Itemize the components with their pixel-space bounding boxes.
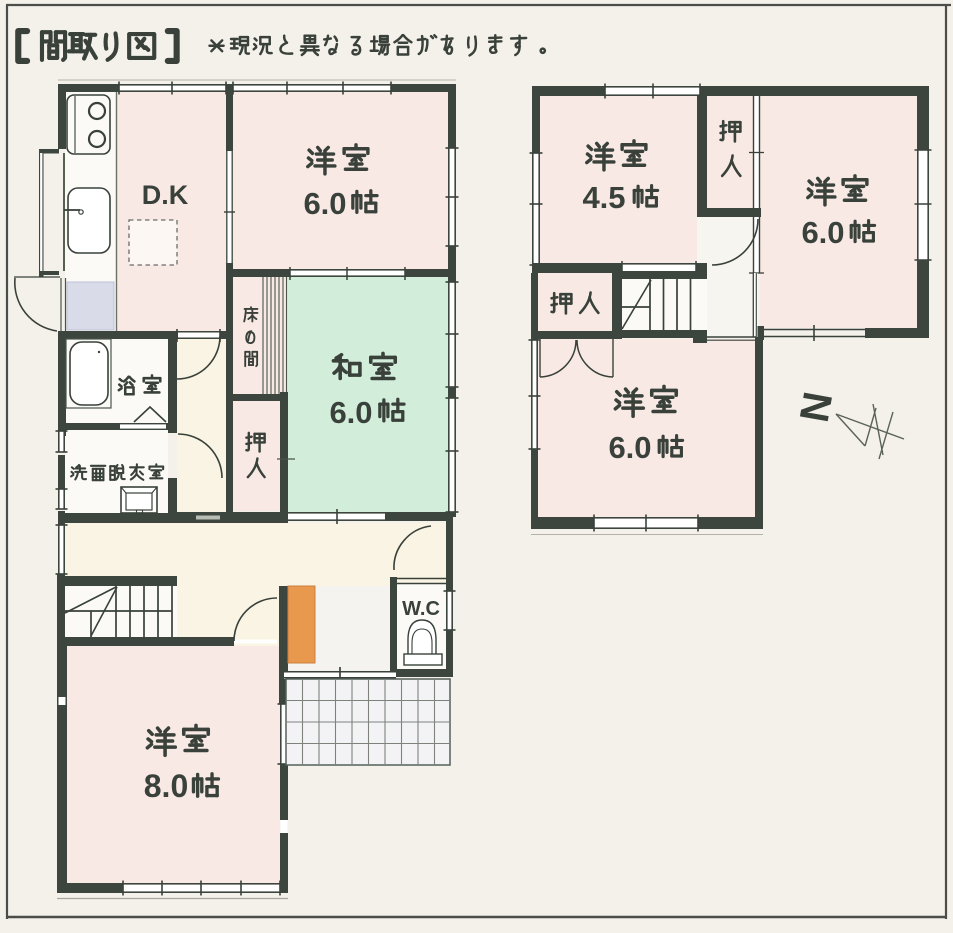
svg-text:W.C: W.C: [402, 598, 440, 620]
svg-text:8.0: 8.0: [144, 768, 188, 804]
svg-text:4.5: 4.5: [582, 180, 625, 215]
svg-text:6.0: 6.0: [608, 430, 651, 465]
svg-text:6.0: 6.0: [329, 395, 372, 430]
svg-text:D.K: D.K: [142, 180, 189, 210]
svg-text:6.0: 6.0: [801, 215, 844, 250]
svg-text:6.0: 6.0: [303, 186, 346, 221]
